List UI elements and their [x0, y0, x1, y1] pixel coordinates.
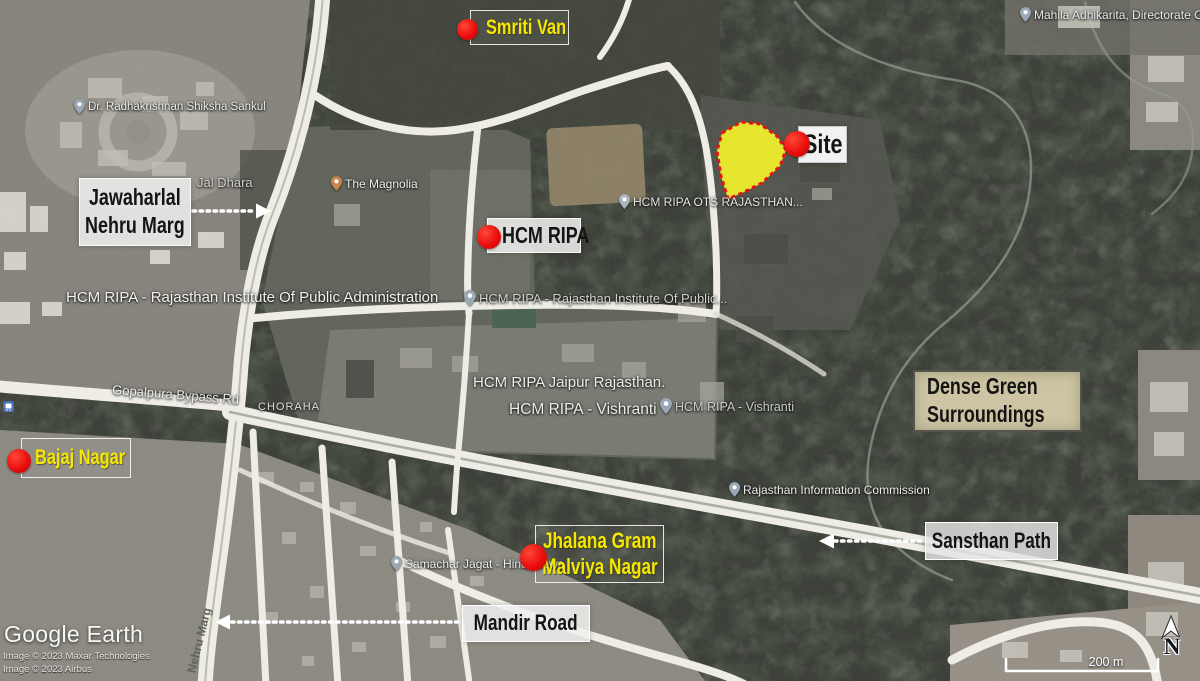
marker-dot-hcm-ripa	[477, 225, 501, 249]
scale-bar-label: 200 m	[1066, 655, 1146, 669]
label-text: Smriti Van	[486, 15, 566, 40]
map-pin-icon	[331, 176, 342, 191]
map-pin-icon	[619, 194, 630, 209]
place-label-vishranti: HCM RIPA - Vishranti	[509, 401, 657, 419]
map-pin-icon	[464, 290, 476, 306]
place-label-text: Mahila Adhikarita, Directorate Of...	[1034, 9, 1200, 23]
place-label-hcm-jaipur: HCM RIPA Jaipur Rajasthan.	[473, 374, 665, 391]
label-text: Bajaj Nagar	[35, 445, 125, 470]
google-earth-logo: Google Earth	[4, 621, 143, 648]
map-pin-icon	[74, 99, 85, 114]
imagery-credit-airbus: Image © 2023 Airbus	[3, 664, 92, 675]
place-label-magnolia: The Magnolia	[331, 178, 418, 192]
place-label-text: HCM RIPA OTS RAJASTHAN...	[633, 196, 803, 210]
marker-dot-jhalana-gram	[520, 544, 547, 571]
place-label-hcm-ots: HCM RIPA OTS RAJASTHAN...	[619, 196, 803, 210]
label-box-jawaharlal-nehru-marg: Jawaharlal Nehru Marg	[79, 178, 191, 246]
scale-text: 200 m	[1089, 655, 1124, 669]
place-label-text: HCM RIPA - Rajasthan Institute Of Public…	[479, 292, 727, 307]
label-box-mandir-road: Mandir Road	[462, 605, 590, 642]
label-text: HCM RIPA	[502, 222, 589, 250]
place-label-text: HCM RIPA Jaipur Rajasthan.	[473, 374, 665, 391]
label-text: Dense Green	[927, 373, 1038, 401]
map-pin-icon	[660, 398, 672, 414]
marker-dot-smriti-van	[457, 19, 478, 40]
place-label-mahila: Mahila Adhikarita, Directorate Of...	[1020, 9, 1200, 23]
label-box-bajaj-nagar: Bajaj Nagar	[21, 438, 131, 478]
place-label-text: Rajasthan Information Commission	[743, 484, 930, 498]
bus-glyph-icon	[5, 403, 12, 411]
credit-text: Image © 2023 Maxar Technologies	[3, 651, 150, 662]
transit-station-icon	[3, 401, 14, 412]
place-label-hcm-full: HCM RIPA - Rajasthan Institute Of Public…	[66, 289, 438, 306]
place-label-rajasthan-info: Rajasthan Information Commission	[729, 484, 930, 498]
map-pin-icon	[1020, 7, 1031, 22]
label-text: Jhalana Gram	[543, 528, 657, 554]
label-text: Surroundings	[927, 401, 1045, 429]
place-label-vishranti-small: HCM RIPA - Vishranti	[660, 400, 794, 414]
label-text: Nehru Marg	[85, 212, 185, 240]
place-label-radhakrishnan: Dr. Radhakrishnan Shiksha Sankul	[74, 101, 266, 114]
place-label-text: Jal Dhara	[197, 176, 253, 191]
map-pin-icon	[391, 556, 402, 571]
label-text: Mandir Road	[474, 610, 578, 636]
label-box-hcm-ripa: HCM RIPA	[487, 218, 581, 253]
place-label-text: HCM RIPA - Vishranti	[675, 400, 794, 414]
label-box-jhalana-gram: Jhalana Gram Malviya Nagar	[535, 525, 664, 583]
label-text: Jawaharlal	[89, 184, 181, 212]
north-label: N	[1158, 634, 1186, 660]
place-label-text: Dr. Radhakrishnan Shiksha Sankul	[88, 101, 266, 114]
label-box-sansthan-path: Sansthan Path	[925, 522, 1058, 560]
label-box-smriti-van: Smriti Van	[470, 10, 569, 45]
marker-dot-bajaj-nagar	[7, 449, 31, 473]
marker-dot-site	[784, 131, 810, 157]
place-label-jal-dhara: Jal Dhara	[197, 176, 253, 191]
north-text: N	[1164, 634, 1181, 659]
place-label-hcm-partial: HCM RIPA - Rajasthan Institute Of Public…	[464, 292, 727, 307]
annotated-satellite-map: Dr. Radhakrishnan Shiksha Sankul Jal Dha…	[0, 0, 1200, 681]
place-label-text: HCM RIPA - Rajasthan Institute Of Public…	[66, 289, 438, 306]
credit-text: Image © 2023 Airbus	[3, 664, 92, 675]
imagery-credit-maxar: Image © 2023 Maxar Technologies	[3, 651, 150, 662]
place-label-text: The Magnolia	[345, 178, 418, 192]
label-text: Malviya Nagar	[542, 554, 657, 580]
place-label-text: HCM RIPA - Vishranti	[509, 401, 657, 419]
map-pin-icon	[729, 482, 740, 497]
place-label-chorha: CHORAHA	[258, 401, 320, 414]
label-text: Sansthan Path	[932, 528, 1051, 554]
place-label-text: CHORAHA	[258, 401, 320, 414]
label-box-dense-green: Dense Green Surroundings	[913, 370, 1082, 432]
logo-text: Google Earth	[4, 621, 143, 647]
